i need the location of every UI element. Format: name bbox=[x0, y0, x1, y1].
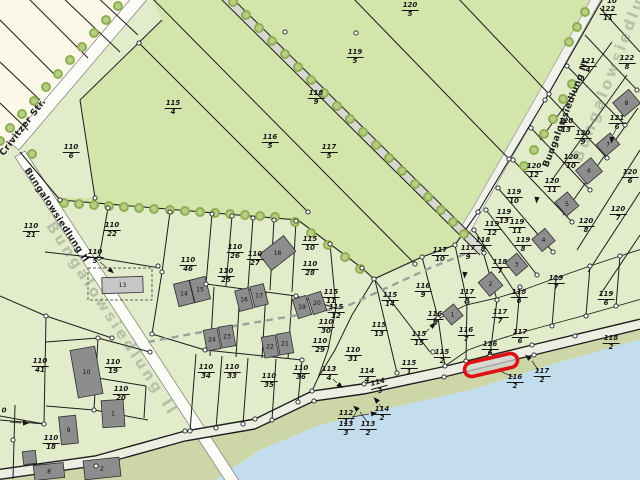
tree-icon bbox=[307, 76, 315, 84]
building bbox=[22, 450, 36, 464]
tree-icon bbox=[294, 63, 302, 71]
tree-icon bbox=[568, 80, 576, 88]
building-number: 16 bbox=[240, 297, 248, 304]
tree-icon bbox=[75, 200, 83, 208]
cadastral-map[interactable]: 13141516171819202423222187654321109128 B… bbox=[0, 0, 640, 480]
tree-icon bbox=[307, 229, 315, 237]
building: 8 bbox=[33, 462, 64, 480]
tree-icon bbox=[120, 203, 128, 211]
building-number: 5 bbox=[565, 201, 569, 208]
tree-icon bbox=[565, 38, 573, 46]
map-canvas: 13141516171819202423222187654321109128 bbox=[0, 0, 640, 480]
tree-icon bbox=[341, 253, 349, 261]
building-number: 7 bbox=[606, 141, 610, 148]
tree-icon bbox=[256, 212, 264, 220]
tree-icon bbox=[18, 110, 26, 118]
tree-icon bbox=[0, 137, 4, 145]
building-number: 6 bbox=[587, 168, 591, 175]
tree-icon bbox=[114, 2, 122, 10]
building-number: 21 bbox=[281, 341, 289, 348]
building-number: 2 bbox=[100, 465, 104, 472]
building-number: 22 bbox=[266, 344, 274, 351]
tree-icon bbox=[66, 56, 74, 64]
tree-icon bbox=[372, 141, 380, 149]
building-number: 17 bbox=[255, 293, 263, 300]
tree-icon bbox=[520, 162, 528, 170]
tree-icon bbox=[437, 206, 445, 214]
tree-icon bbox=[320, 89, 328, 97]
tree-icon bbox=[530, 146, 538, 154]
building-number: 3 bbox=[515, 262, 519, 269]
tree-icon bbox=[42, 83, 50, 91]
building: 2 bbox=[83, 457, 121, 480]
tree-icon bbox=[150, 205, 158, 213]
tree-icon bbox=[78, 43, 86, 51]
tree-icon bbox=[573, 23, 581, 31]
tree-icon bbox=[229, 0, 237, 6]
building-number: 24 bbox=[208, 337, 216, 344]
tree-icon bbox=[54, 70, 62, 78]
tree-icon bbox=[90, 201, 98, 209]
tree-icon bbox=[411, 180, 419, 188]
tree-icon bbox=[196, 208, 204, 216]
tree-icon bbox=[424, 193, 432, 201]
building-number: 4 bbox=[542, 237, 546, 244]
building-number: 19 bbox=[298, 304, 306, 311]
tree-icon bbox=[549, 115, 557, 123]
tree-icon bbox=[449, 218, 457, 226]
tree-icon bbox=[241, 211, 249, 219]
tree-icon bbox=[268, 37, 276, 45]
tree-icon bbox=[28, 150, 36, 158]
building: 1 bbox=[101, 399, 125, 427]
building-number: 20 bbox=[313, 300, 321, 307]
tree-icon bbox=[30, 97, 38, 105]
building-number: 15 bbox=[196, 287, 204, 294]
building: 13 bbox=[102, 276, 144, 293]
building-number: 14 bbox=[180, 291, 188, 298]
tree-icon bbox=[346, 115, 354, 123]
building-number: 18 bbox=[274, 250, 282, 257]
tree-icon bbox=[6, 124, 14, 132]
tree-icon bbox=[255, 24, 263, 32]
tree-icon bbox=[181, 207, 189, 215]
tree-icon bbox=[398, 167, 406, 175]
tree-icon bbox=[385, 154, 393, 162]
tree-icon bbox=[135, 204, 143, 212]
tree-icon bbox=[460, 230, 468, 238]
tree-icon bbox=[281, 50, 289, 58]
building-number: 8 bbox=[625, 100, 629, 107]
building: 9 bbox=[59, 415, 79, 445]
building-number: 23 bbox=[223, 334, 231, 341]
tree-icon bbox=[242, 11, 250, 19]
building-number: 1 bbox=[451, 312, 455, 319]
tree-icon bbox=[359, 128, 367, 136]
tree-icon bbox=[102, 16, 110, 24]
building-number: 13 bbox=[119, 282, 127, 289]
building-number: 1 bbox=[111, 411, 115, 418]
building-number: 2 bbox=[489, 281, 493, 288]
tree-icon bbox=[581, 8, 589, 16]
tree-icon bbox=[90, 29, 98, 37]
building-number: 10 bbox=[83, 369, 91, 376]
tree-icon bbox=[559, 95, 567, 103]
tree-icon bbox=[333, 102, 341, 110]
building-number: 9 bbox=[67, 427, 71, 434]
tree-icon bbox=[540, 130, 548, 138]
building-number: 8 bbox=[47, 469, 51, 476]
